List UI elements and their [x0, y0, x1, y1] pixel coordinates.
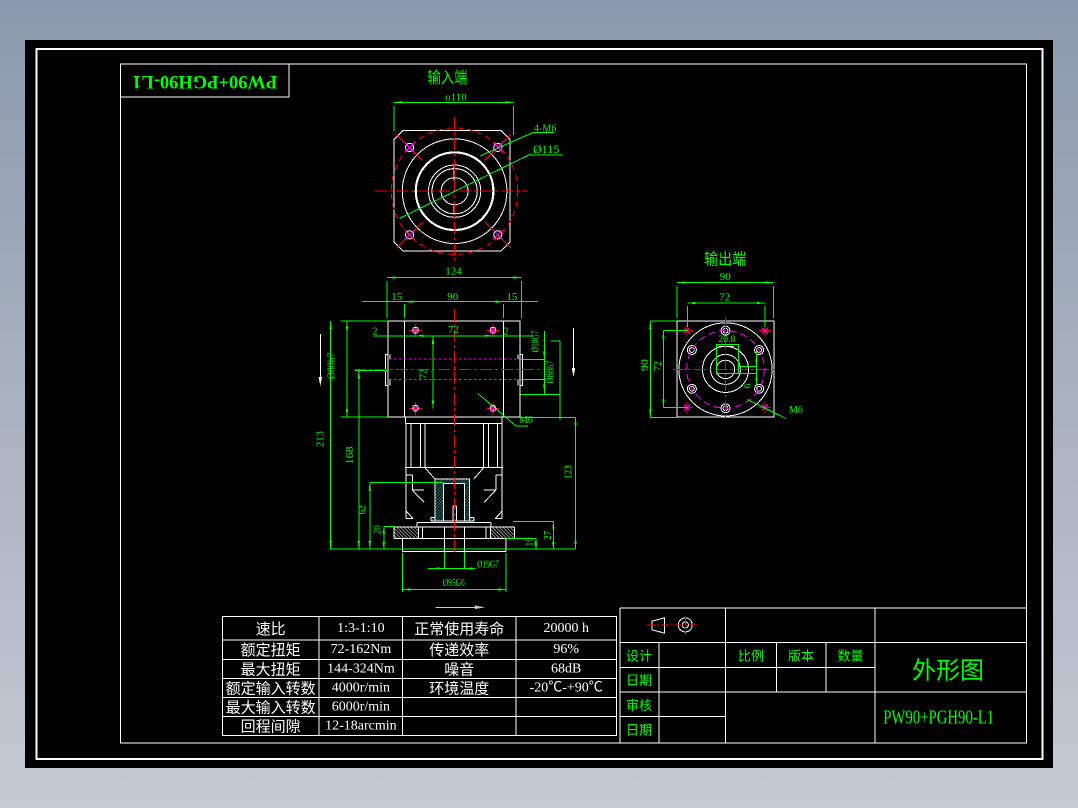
svg-text:日期: 日期	[626, 720, 652, 739]
svg-text:20: 20	[373, 525, 384, 534]
svg-text:审核: 审核	[626, 695, 652, 714]
svg-text:168: 168	[344, 446, 356, 465]
svg-text:72: 72	[448, 324, 459, 336]
svg-text:环境温度: 环境温度	[429, 677, 489, 698]
svg-text:124: 124	[445, 266, 462, 278]
svg-text:额定输入转数: 额定输入转数	[226, 677, 316, 698]
svg-text:2: 2	[373, 327, 378, 338]
svg-text:1:3-1:10: 1:3-1:10	[337, 621, 384, 636]
svg-text:比例: 比例	[738, 645, 764, 664]
svg-text:72: 72	[419, 369, 430, 379]
svg-text:正常使用寿命: 正常使用寿命	[414, 618, 504, 639]
svg-text:PW90+PGH90-L1: PW90+PGH90-L1	[883, 707, 994, 729]
svg-text:o110: o110	[445, 92, 467, 104]
svg-text:版本: 版本	[788, 645, 814, 664]
svg-text:62: 62	[358, 505, 369, 514]
svg-text:4-M6: 4-M6	[534, 124, 556, 135]
svg-text:20.8: 20.8	[718, 334, 736, 344]
svg-text:外形图: 外形图	[912, 651, 984, 686]
svg-text:日期: 日期	[626, 670, 652, 689]
svg-text:最大输入转数: 最大输入转数	[226, 697, 316, 718]
svg-text:-20℃-+90℃: -20℃-+90℃	[530, 680, 603, 695]
svg-text:输入端: 输入端	[428, 64, 468, 88]
svg-text:Ø115: Ø115	[533, 142, 559, 156]
svg-text:27: 27	[543, 531, 554, 540]
svg-text:PW90+PGH90-L1: PW90+PGH90-L1	[132, 71, 277, 92]
svg-text:最大扭矩: 最大扭矩	[241, 658, 301, 679]
svg-text:90: 90	[639, 359, 651, 372]
svg-text:传递效率: 传递效率	[429, 639, 489, 660]
svg-text:2: 2	[504, 327, 509, 338]
svg-text:15: 15	[506, 291, 518, 303]
svg-text:90: 90	[720, 271, 732, 283]
svg-text:6: 6	[744, 384, 754, 389]
svg-text:M6: M6	[789, 405, 803, 416]
svg-text:12-18arcmin: 12-18arcmin	[325, 719, 397, 734]
svg-text:Ø88h7: Ø88h7	[546, 361, 557, 384]
svg-text:额定扭矩: 额定扭矩	[241, 639, 301, 660]
svg-text:144-324Nm: 144-324Nm	[327, 661, 395, 676]
svg-text:回程间隙: 回程间隙	[241, 716, 301, 737]
svg-text:M6: M6	[519, 415, 533, 426]
svg-text:设计: 设计	[626, 645, 652, 664]
svg-text:72-162Nm: 72-162Nm	[331, 642, 392, 657]
svg-text:68dB: 68dB	[551, 661, 581, 676]
svg-text:4000r/min: 4000r/min	[332, 680, 390, 695]
svg-text:Ø95G6: Ø95G6	[443, 578, 465, 589]
svg-text:15: 15	[391, 291, 403, 303]
svg-text:96%: 96%	[553, 642, 579, 657]
svg-text:输出端: 输出端	[704, 246, 746, 270]
svg-text:6000r/min: 6000r/min	[332, 700, 390, 715]
svg-text:90: 90	[447, 291, 459, 303]
svg-text:Ø19G7: Ø19G7	[477, 560, 499, 571]
svg-text:速比: 速比	[256, 618, 286, 639]
svg-text:10: 10	[525, 537, 536, 546]
svg-text:20000 h: 20000 h	[543, 621, 589, 636]
svg-text:123: 123	[563, 465, 575, 479]
svg-text:Ø88h7: Ø88h7	[327, 352, 338, 379]
svg-text:噪音: 噪音	[444, 658, 474, 679]
svg-text:Ø18G7: Ø18G7	[531, 330, 542, 352]
svg-text:数量: 数量	[837, 645, 863, 664]
svg-text:213: 213	[315, 431, 327, 447]
svg-text:72: 72	[652, 361, 664, 371]
svg-text:72: 72	[719, 292, 730, 304]
